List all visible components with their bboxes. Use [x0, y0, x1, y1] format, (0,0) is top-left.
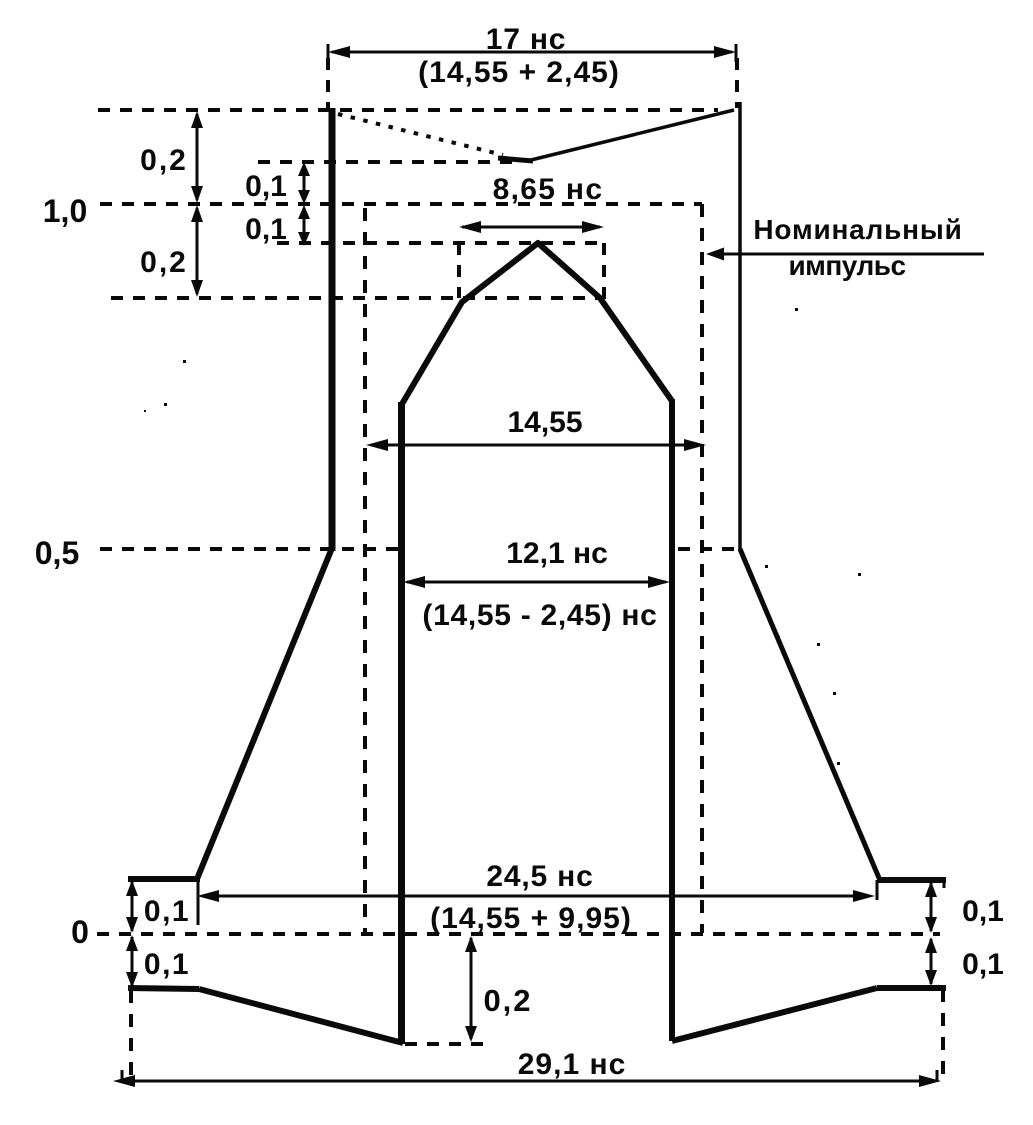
svg-text:(14,55 + 9,95): (14,55 + 9,95) [430, 902, 632, 935]
svg-text:0,1: 0,1 [245, 213, 287, 246]
svg-text:12,1 нс: 12,1 нс [506, 537, 608, 570]
svg-text:Номинальный: Номинальный [753, 214, 962, 245]
svg-text:0,1: 0,1 [144, 948, 190, 981]
svg-text:0,2: 0,2 [140, 144, 188, 177]
svg-text:0,2: 0,2 [483, 983, 532, 1018]
svg-text:29,1 нс: 29,1 нс [518, 1048, 627, 1081]
svg-text:импульс: импульс [788, 250, 905, 281]
svg-text:24,5 нс: 24,5 нс [486, 860, 593, 893]
svg-text:(14,55 - 2,45) нс: (14,55 - 2,45) нс [422, 599, 657, 632]
svg-text:0,1: 0,1 [144, 895, 190, 928]
svg-text:8,65 нс: 8,65 нс [493, 173, 604, 206]
svg-text:0,2: 0,2 [140, 246, 188, 279]
svg-text:0,1: 0,1 [962, 895, 1004, 928]
svg-text:0,1: 0,1 [962, 948, 1004, 981]
svg-text:14,55: 14,55 [507, 406, 582, 439]
svg-text:(14,55 + 2,45): (14,55 + 2,45) [418, 56, 620, 89]
svg-text:17 нс: 17 нс [486, 23, 567, 56]
svg-text:1,0: 1,0 [43, 193, 87, 229]
svg-text:0: 0 [71, 914, 89, 950]
svg-text:0,1: 0,1 [245, 170, 287, 203]
svg-text:0,5: 0,5 [35, 535, 79, 571]
